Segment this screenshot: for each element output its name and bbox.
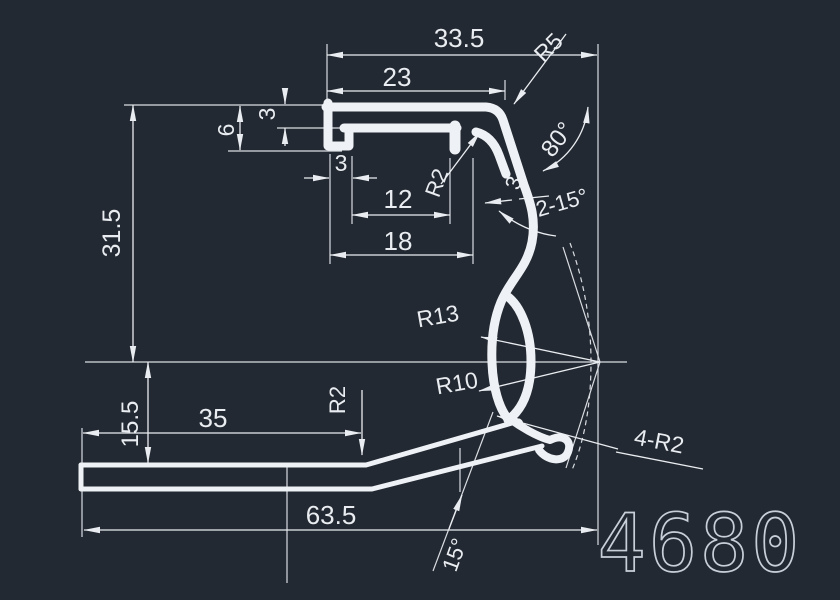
dim-18-label: 18 [384, 226, 413, 256]
radius-line-upper [563, 247, 600, 362]
profile-bulb-rib [507, 296, 531, 420]
angle-80-label: 80° [536, 117, 580, 162]
dim-3-lip-label: 3 [335, 150, 348, 176]
dim-12-label: 12 [384, 184, 413, 214]
dim-23-label: 23 [383, 62, 412, 92]
dim-63-5-label: 63.5 [306, 500, 357, 530]
angle-15-label: 15° [437, 535, 472, 575]
part-number: 4680 [598, 497, 803, 590]
cad-drawing: 33.5 23 R5 6 3 3 31.5 12 18 R2 80° 3 2-1… [0, 0, 840, 600]
leader-r13 [481, 337, 600, 362]
dim-3-top-label: 3 [254, 108, 280, 121]
profile-outline [81, 103, 569, 489]
r2-bend-label: R2 [325, 386, 350, 414]
cad-canvas: 33.5 23 R5 6 3 3 31.5 12 18 R2 80° 3 2-1… [0, 0, 840, 600]
r5-label: R5 [529, 28, 568, 67]
dim-33-5-label: 33.5 [434, 23, 485, 53]
profile-inner-wall-fillet [476, 132, 506, 174]
underline-4-r2 [616, 452, 703, 469]
r10-label: R10 [434, 367, 480, 400]
dim-35-label: 35 [199, 403, 228, 433]
profile-foot-junction [508, 419, 519, 423]
r13-label: R13 [415, 300, 461, 333]
r2-slot-label: R2 [420, 165, 453, 200]
dim-line-3-wall-a [485, 200, 512, 203]
dim-arrow-15deg-bottom [449, 495, 462, 529]
dim-31-5-label: 31.5 [98, 209, 126, 258]
dim-6-label: 6 [213, 124, 239, 137]
dim-4-r2-label: 4-R2 [632, 424, 686, 459]
dim-15-5-label: 15.5 [117, 401, 144, 448]
angle-2-15-label: 2-15° [533, 183, 591, 222]
profile-base-top-edge [81, 421, 519, 465]
